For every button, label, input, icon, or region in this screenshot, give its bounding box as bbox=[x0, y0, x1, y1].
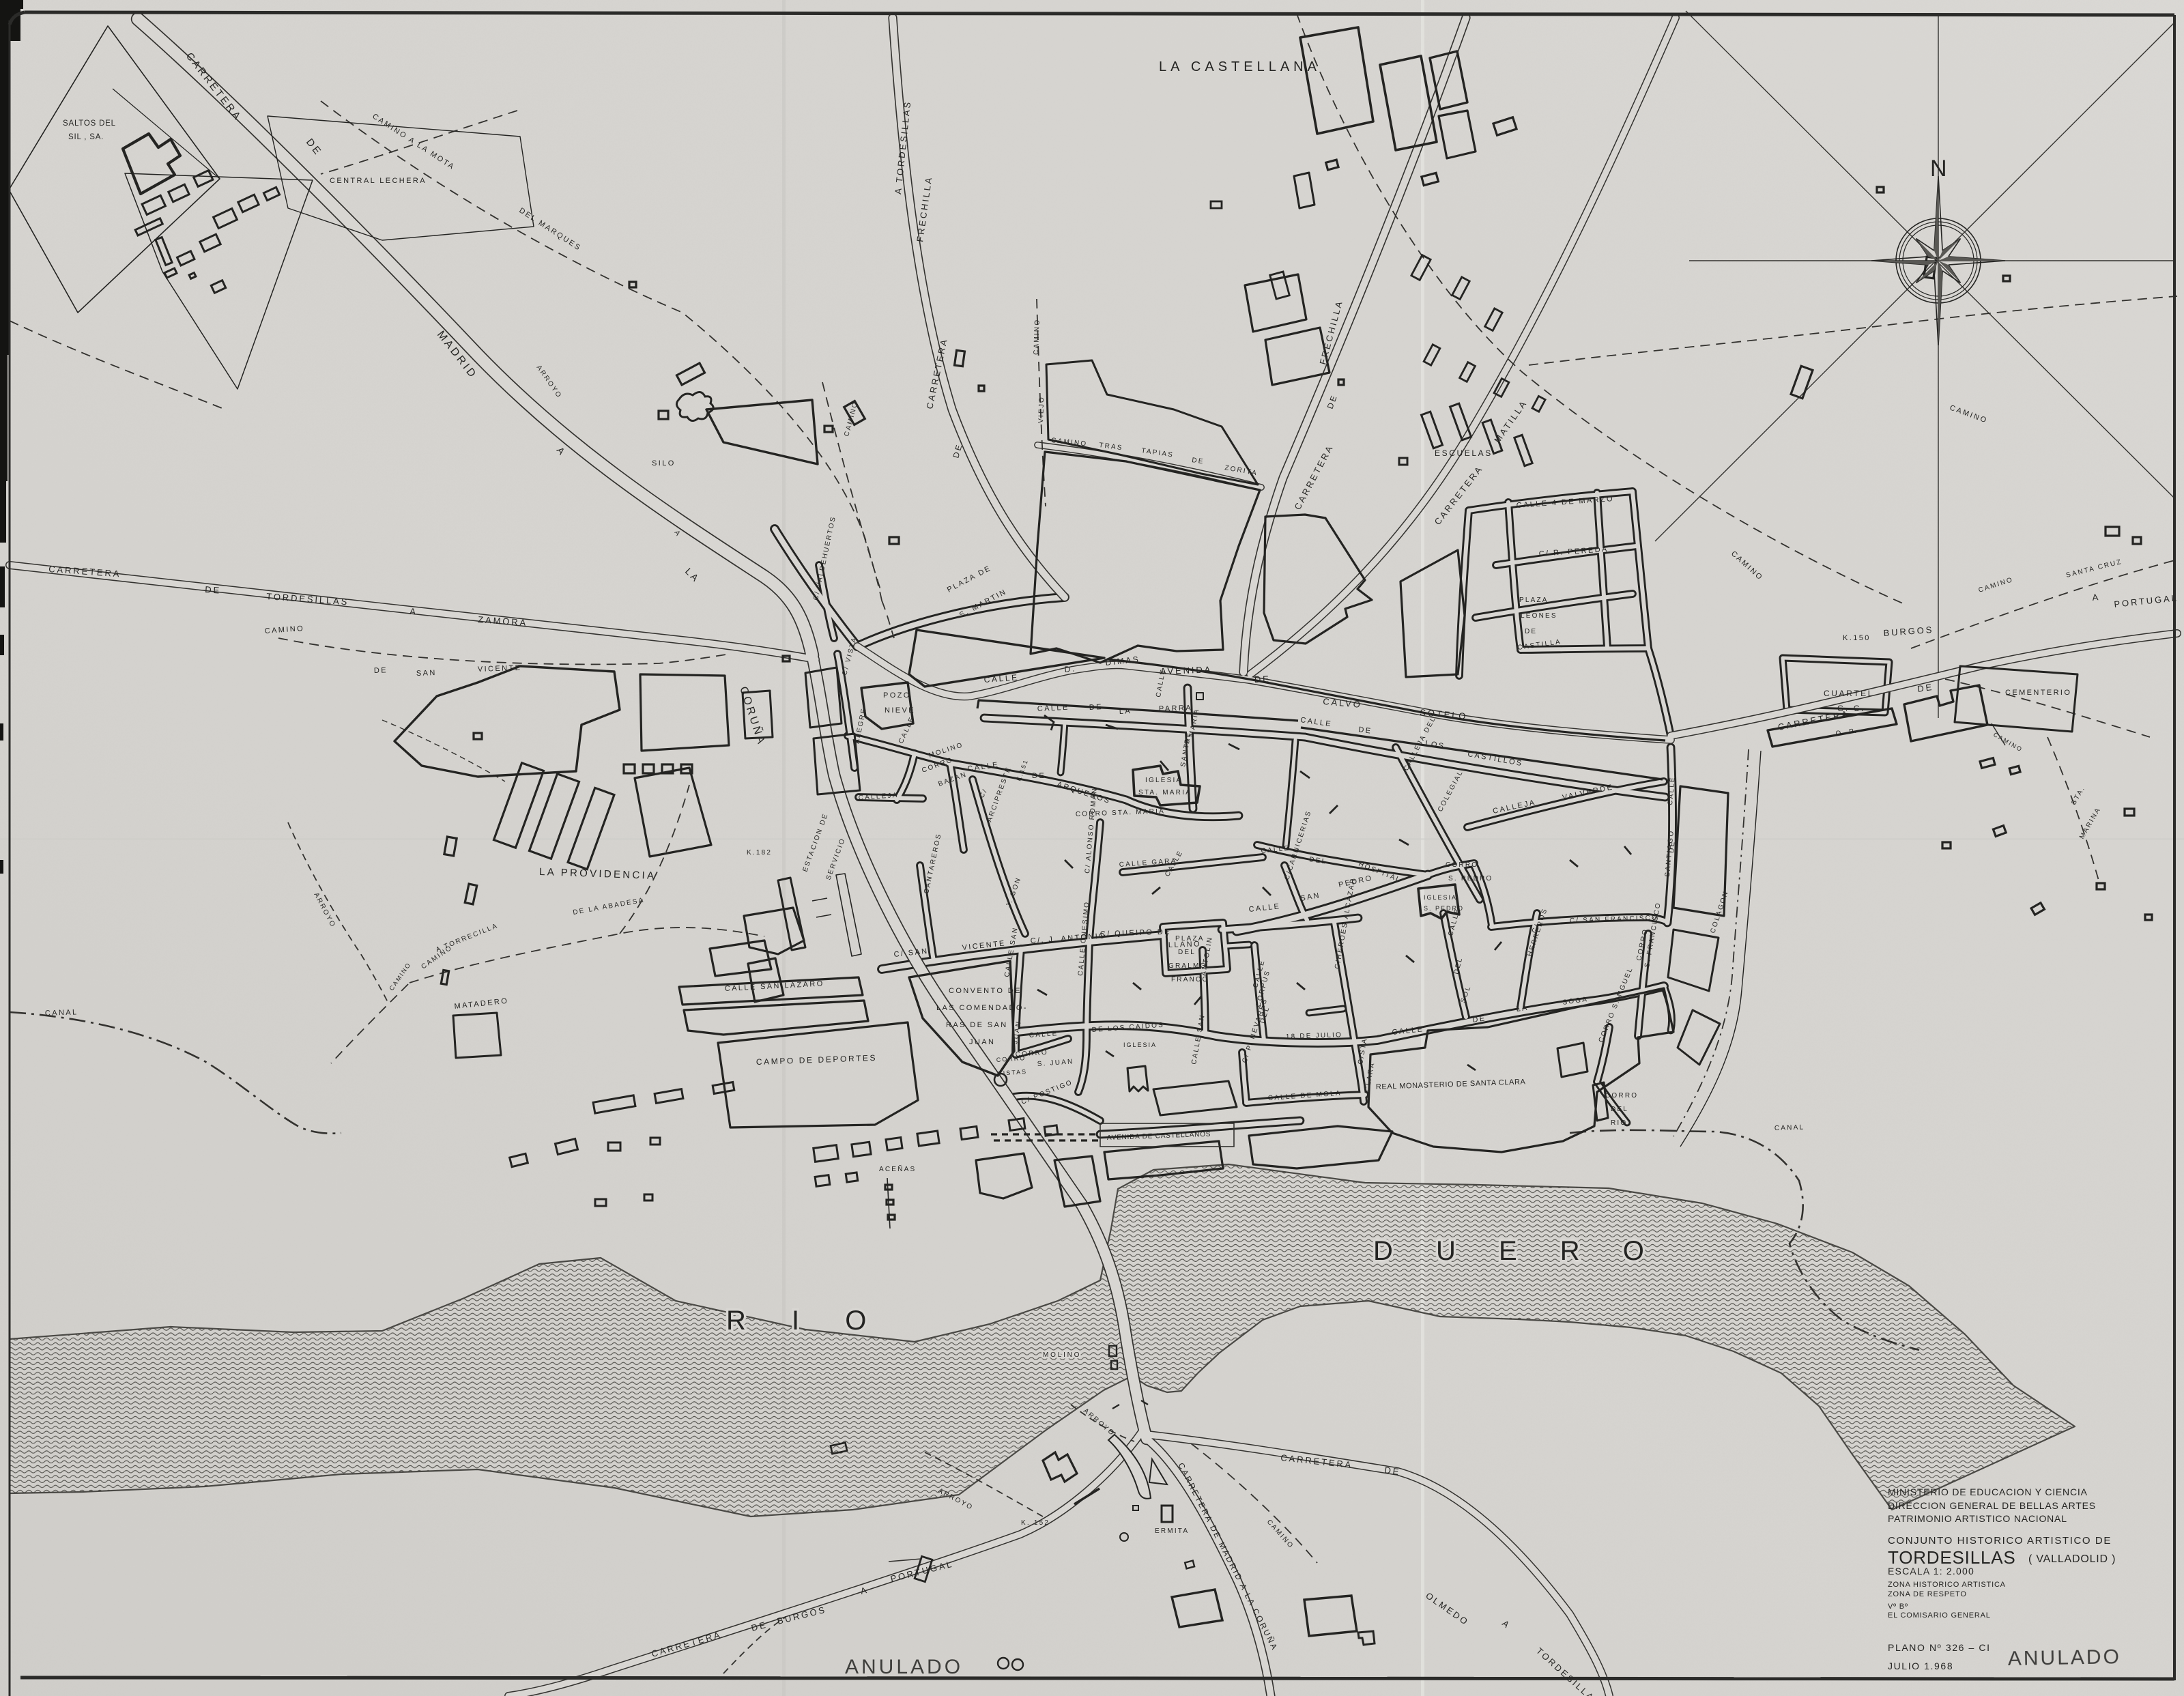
svg-text:RAS DE SAN: RAS DE SAN bbox=[946, 1021, 1008, 1029]
svg-text:LA: LA bbox=[1119, 707, 1132, 716]
svg-text:LA: LA bbox=[1516, 1004, 1529, 1014]
svg-text:A: A bbox=[409, 606, 418, 617]
svg-text:CONJUNTO HISTORICO ARTISTI: CONJUNTO HISTORICO ARTISTICO DE bbox=[1888, 1535, 2112, 1547]
svg-text:PLANO Nº 326 – CI: PLANO Nº 326 – CI bbox=[1888, 1642, 1991, 1653]
svg-text:ZONA HISTORICO ARTISTICA: ZONA HISTORICO ARTISTICA bbox=[1888, 1581, 2006, 1589]
svg-text:IGLESIA: IGLESIA bbox=[1123, 1041, 1157, 1048]
svg-text:LA CASTELLANA: LA CASTELLANA bbox=[1159, 59, 1321, 74]
svg-text:( VALLADOLID ): ( VALLADOLID ) bbox=[2028, 1553, 2116, 1565]
svg-text:CORRO: CORRO bbox=[1605, 1092, 1638, 1099]
svg-text:MINISTERIO DE EDUCACION Y: MINISTERIO DE EDUCACION Y CIENCIA bbox=[1888, 1486, 2088, 1497]
svg-text:K.150: K.150 bbox=[1843, 634, 1871, 642]
svg-text:CANAL: CANAL bbox=[1774, 1123, 1805, 1132]
svg-text:NIEVE: NIEVE bbox=[885, 706, 915, 715]
svg-text:ERMITA: ERMITA bbox=[1155, 1527, 1189, 1535]
svg-text:DEL: DEL bbox=[1178, 949, 1196, 956]
svg-text:SIL , SA.: SIL , SA. bbox=[68, 133, 104, 141]
svg-text:PLAZA: PLAZA bbox=[1175, 935, 1205, 943]
svg-text:ACEÑAS: ACEÑAS bbox=[879, 1164, 916, 1173]
svg-text:DE: DE bbox=[205, 584, 222, 596]
svg-text:D U E R O: D U E R O bbox=[1373, 1236, 1662, 1266]
svg-text:LAS COMENDADO-: LAS COMENDADO- bbox=[936, 1004, 1028, 1012]
svg-text:POZO: POZO bbox=[883, 691, 911, 700]
svg-text:ANULADO: ANULADO bbox=[845, 1656, 963, 1678]
svg-text:CUARTEL: CUARTEL bbox=[1824, 689, 1874, 698]
svg-text:Vº Bº: Vº Bº bbox=[1888, 1602, 1908, 1611]
svg-text:PATRIMONIO ARTISTICO NAC: PATRIMONIO ARTISTICO NACIONAL bbox=[1888, 1513, 2067, 1524]
svg-text:VIEJO: VIEJO bbox=[1037, 396, 1046, 423]
svg-text:N: N bbox=[1930, 156, 1952, 182]
svg-text:AVENIDA: AVENIDA bbox=[1160, 664, 1213, 676]
svg-text:A: A bbox=[2092, 592, 2101, 603]
svg-text:CAMINO: CAMINO bbox=[1033, 319, 1041, 356]
svg-text:DEL: DEL bbox=[1611, 1106, 1628, 1113]
svg-text:TORDESILLAS: TORDESILLAS bbox=[1888, 1547, 2016, 1568]
svg-text:IGLESIA: IGLESIA bbox=[1424, 894, 1457, 901]
svg-text:DIRECCION GENERAL DE BELLAS: DIRECCION GENERAL DE BELLAS ARTES bbox=[1888, 1500, 2096, 1511]
svg-text:JULIO 1.968: JULIO 1.968 bbox=[1888, 1661, 1953, 1671]
svg-text:SILO: SILO bbox=[652, 459, 676, 468]
svg-text:SAN: SAN bbox=[416, 669, 437, 678]
svg-text:D.: D. bbox=[1064, 663, 1077, 674]
svg-text:S. PEDRO: S. PEDRO bbox=[1448, 875, 1493, 882]
svg-text:MOLINO: MOLINO bbox=[1043, 1351, 1081, 1359]
svg-text:CONVENTO DE: CONVENTO DE bbox=[949, 987, 1022, 995]
svg-text:CALLE: CALLE bbox=[1037, 704, 1069, 713]
svg-text:K.182: K.182 bbox=[747, 849, 772, 857]
svg-text:STA. MARIA: STA. MARIA bbox=[1138, 789, 1192, 796]
svg-text:PLAZA: PLAZA bbox=[1519, 597, 1549, 604]
svg-text:CORRO: CORRO bbox=[1446, 861, 1478, 869]
svg-text:R I O: R I O bbox=[726, 1306, 885, 1336]
svg-text:LEONES: LEONES bbox=[1521, 612, 1557, 620]
svg-text:DE: DE bbox=[1032, 772, 1046, 780]
svg-text:EL COMISARIO GENERAL: EL COMISARIO GENERAL bbox=[1888, 1611, 1991, 1620]
svg-text:DE: DE bbox=[1089, 703, 1104, 712]
svg-text:CANAL: CANAL bbox=[45, 1008, 78, 1018]
svg-text:DE: DE bbox=[1525, 628, 1537, 635]
svg-text:CENTRAL LECHERA: CENTRAL LECHERA bbox=[330, 177, 427, 185]
svg-text:DE: DE bbox=[1254, 674, 1271, 685]
svg-text:SALTOS DEL: SALTOS DEL bbox=[63, 119, 116, 128]
svg-text:K. 152: K. 152 bbox=[1021, 1519, 1050, 1527]
svg-text:ANULADO: ANULADO bbox=[2008, 1645, 2122, 1670]
svg-text:ESCUELAS: ESCUELAS bbox=[1435, 448, 1493, 458]
svg-text:DE: DE bbox=[374, 666, 388, 675]
svg-text:ZONA DE RESPETO: ZONA DE RESPETO bbox=[1888, 1590, 1967, 1598]
svg-text:RIO: RIO bbox=[1611, 1119, 1627, 1127]
svg-text:IGLESIA: IGLESIA bbox=[1145, 777, 1182, 784]
svg-text:JUAN: JUAN bbox=[969, 1038, 995, 1046]
svg-text:VICENTE: VICENTE bbox=[478, 664, 522, 674]
svg-text:FRANCO: FRANCO bbox=[1171, 976, 1209, 983]
svg-text:ESCALA 1: 2.000: ESCALA 1: 2.000 bbox=[1888, 1566, 1974, 1577]
svg-text:CEMENTERIO: CEMENTERIO bbox=[2005, 689, 2071, 697]
svg-text:PARRA: PARRA bbox=[1159, 704, 1192, 713]
